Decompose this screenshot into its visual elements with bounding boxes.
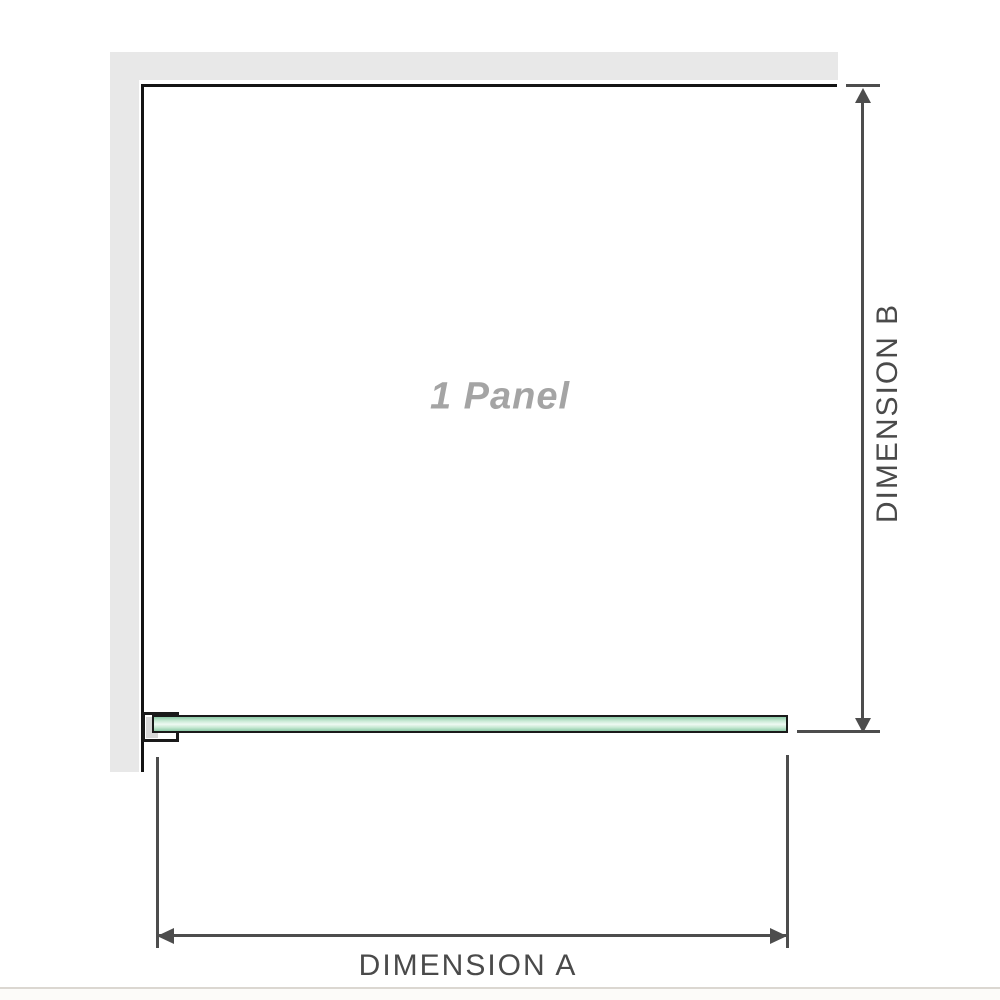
dimension-a-label: DIMENSION A (359, 949, 578, 983)
page-footer-strip (0, 989, 1000, 1000)
panel-count-label: 1 Panel (430, 376, 570, 419)
shower-panel-dimension-diagram: 1 Panel DIMENSION B DIMENSION A (0, 0, 1000, 1000)
enclosure-frame-left-line (141, 84, 144, 772)
arrow-left-icon (157, 928, 174, 944)
dimension-a-line (159, 934, 787, 937)
dimension-a-extension-right (786, 755, 789, 948)
arrow-up-icon (855, 88, 871, 103)
dimension-b-label: DIMENSION B (871, 303, 905, 523)
glass-panel (152, 715, 788, 733)
wall-left (110, 52, 139, 772)
dimension-a-extension-left (156, 757, 159, 948)
dimension-b-line (861, 98, 864, 722)
dimension-b-tick-top (846, 84, 880, 87)
wall-top (110, 52, 838, 80)
arrow-down-icon (855, 718, 871, 733)
arrow-right-icon (770, 928, 787, 944)
enclosure-frame-top-line (141, 84, 837, 87)
